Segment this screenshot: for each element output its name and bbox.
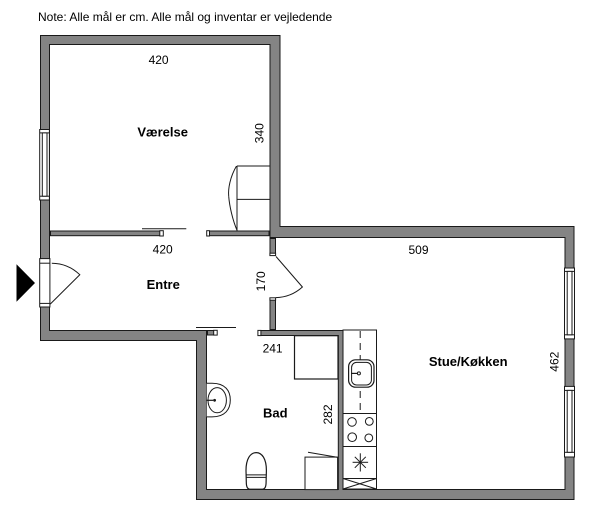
- svg-text:Værelse: Værelse: [137, 124, 188, 139]
- svg-text:Entre: Entre: [147, 277, 180, 292]
- svg-text:509: 509: [408, 243, 428, 257]
- svg-text:340: 340: [253, 123, 267, 143]
- svg-text:Bad: Bad: [263, 405, 288, 420]
- svg-text:Stue/Køkken: Stue/Køkken: [429, 354, 508, 369]
- svg-text:170: 170: [254, 271, 268, 291]
- svg-text:420: 420: [153, 242, 173, 256]
- svg-text:462: 462: [548, 351, 562, 371]
- svg-text:420: 420: [149, 53, 169, 67]
- svg-text:Note: Alle mål er cm. Alle mål: Note: Alle mål er cm. Alle mål og invent…: [38, 10, 332, 24]
- svg-text:282: 282: [321, 404, 335, 424]
- svg-text:241: 241: [263, 341, 283, 355]
